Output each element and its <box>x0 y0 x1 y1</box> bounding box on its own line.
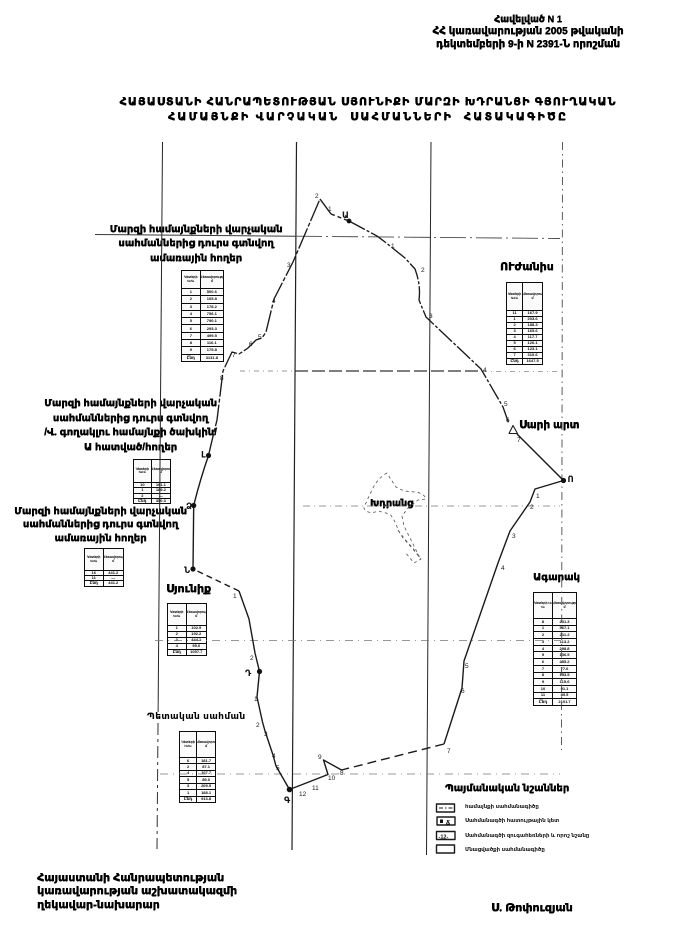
svg-text:5: 5 <box>276 765 280 772</box>
svg-text:7: 7 <box>232 352 236 359</box>
svg-text:Ն: Ն <box>184 565 190 575</box>
svg-text:7: 7 <box>447 748 451 755</box>
svg-text:6: 6 <box>506 417 510 424</box>
svg-text:2: 2 <box>250 655 254 662</box>
svg-text:Ո: Ո <box>568 474 574 484</box>
svg-text:10: 10 <box>328 775 336 782</box>
svg-text:5: 5 <box>465 663 469 670</box>
svg-text:8: 8 <box>340 770 344 777</box>
svg-text:9: 9 <box>318 754 322 761</box>
svg-text:1: 1 <box>391 243 395 250</box>
svg-text:5: 5 <box>504 401 508 408</box>
svg-text:Գ: Գ <box>284 795 291 805</box>
svg-text:3: 3 <box>512 533 516 540</box>
svg-text:6: 6 <box>249 341 253 348</box>
svg-text:1: 1 <box>328 206 332 213</box>
svg-text:1: 1 <box>254 696 258 703</box>
svg-text:1: 1 <box>233 593 237 600</box>
svg-text:Ա: Ա <box>342 210 349 220</box>
svg-text:4: 4 <box>501 565 505 572</box>
svg-text:6: 6 <box>461 688 465 695</box>
svg-text:2: 2 <box>421 267 425 274</box>
svg-text:1: 1 <box>536 493 540 500</box>
svg-text:4: 4 <box>272 753 276 760</box>
svg-text:Լ: Լ <box>201 450 206 460</box>
svg-text:4: 4 <box>272 298 276 305</box>
svg-text:8: 8 <box>220 375 224 382</box>
svg-text:Ճ: Ճ <box>446 820 450 826</box>
svg-text:12: 12 <box>299 791 307 798</box>
svg-text:-12-: -12- <box>439 834 449 840</box>
svg-text:3: 3 <box>287 262 291 269</box>
svg-text:3: 3 <box>429 313 433 320</box>
svg-text:Ձ: Ձ <box>186 501 192 511</box>
svg-text:7: 7 <box>517 437 521 444</box>
svg-text:4: 4 <box>483 367 487 374</box>
svg-text:2: 2 <box>530 504 534 511</box>
svg-text:Դ: Դ <box>245 668 252 678</box>
svg-text:11: 11 <box>312 785 319 792</box>
svg-text:2: 2 <box>256 722 260 729</box>
svg-text:5: 5 <box>258 334 262 341</box>
svg-text:3: 3 <box>264 731 268 738</box>
svg-text:2: 2 <box>315 193 319 200</box>
